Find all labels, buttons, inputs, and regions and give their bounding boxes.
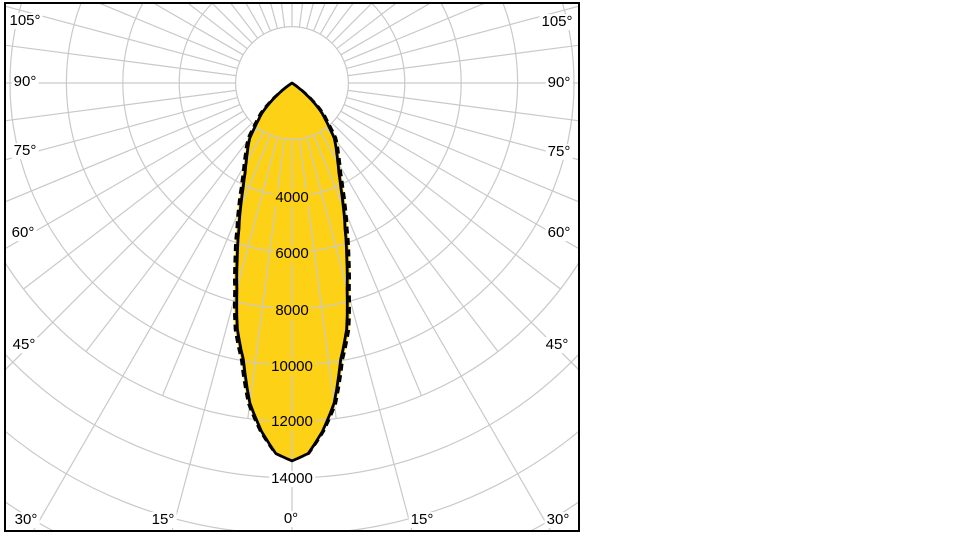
grid-spoke-97.5 — [348, 39, 580, 76]
ring-label-6000: 6000 — [273, 246, 310, 262]
grid-spoke--172.5 — [248, 2, 285, 27]
grid-spoke--127.5 — [24, 2, 248, 49]
angle-label-left-2: 75° — [12, 143, 39, 159]
grid-spoke-82.5 — [348, 90, 580, 127]
ring-label-10000: 10000 — [269, 359, 315, 375]
grid-spoke-75 — [347, 98, 581, 270]
ring-label-8000: 8000 — [273, 303, 310, 319]
angle-label-left-0: 105° — [7, 13, 42, 29]
angle-label-bottom-2: 0° — [282, 511, 300, 527]
angle-label-bottom-1: 15° — [150, 512, 177, 528]
grid-spoke--75 — [4, 98, 238, 270]
grid-spoke--37.5 — [86, 128, 258, 352]
grid-spoke--52.5 — [24, 117, 248, 289]
angle-label-right-1: 90° — [546, 75, 573, 91]
angle-label-bottom-3: 15° — [409, 512, 436, 528]
ring-label-14000: 14000 — [269, 471, 315, 487]
ring-label-12000: 12000 — [269, 414, 315, 430]
angle-label-left-1: 90° — [12, 74, 39, 90]
grid-spoke--97.5 — [4, 39, 236, 76]
grid-spoke-37.5 — [326, 128, 498, 352]
angle-label-right-4: 45° — [544, 337, 571, 353]
grid-spoke-52.5 — [337, 117, 561, 289]
grid-spoke-172.5 — [299, 2, 336, 27]
diagram-canvas: 105°90°75°60°45°105°90°75°60°45°30°15°0°… — [0, 0, 960, 540]
polar-plot — [4, 2, 580, 532]
angle-label-left-4: 45° — [11, 337, 38, 353]
grid-spoke--82.5 — [4, 90, 236, 127]
grid-spoke-127.5 — [337, 2, 561, 49]
ring-label-4000: 4000 — [273, 190, 310, 206]
angle-label-right-3: 60° — [546, 225, 573, 241]
angle-label-bottom-0: 30° — [13, 512, 40, 528]
angle-label-right-2: 75° — [546, 144, 573, 160]
angle-label-bottom-4: 30° — [545, 512, 572, 528]
angle-label-left-3: 60° — [10, 225, 37, 241]
angle-label-right-0: 105° — [539, 14, 574, 30]
